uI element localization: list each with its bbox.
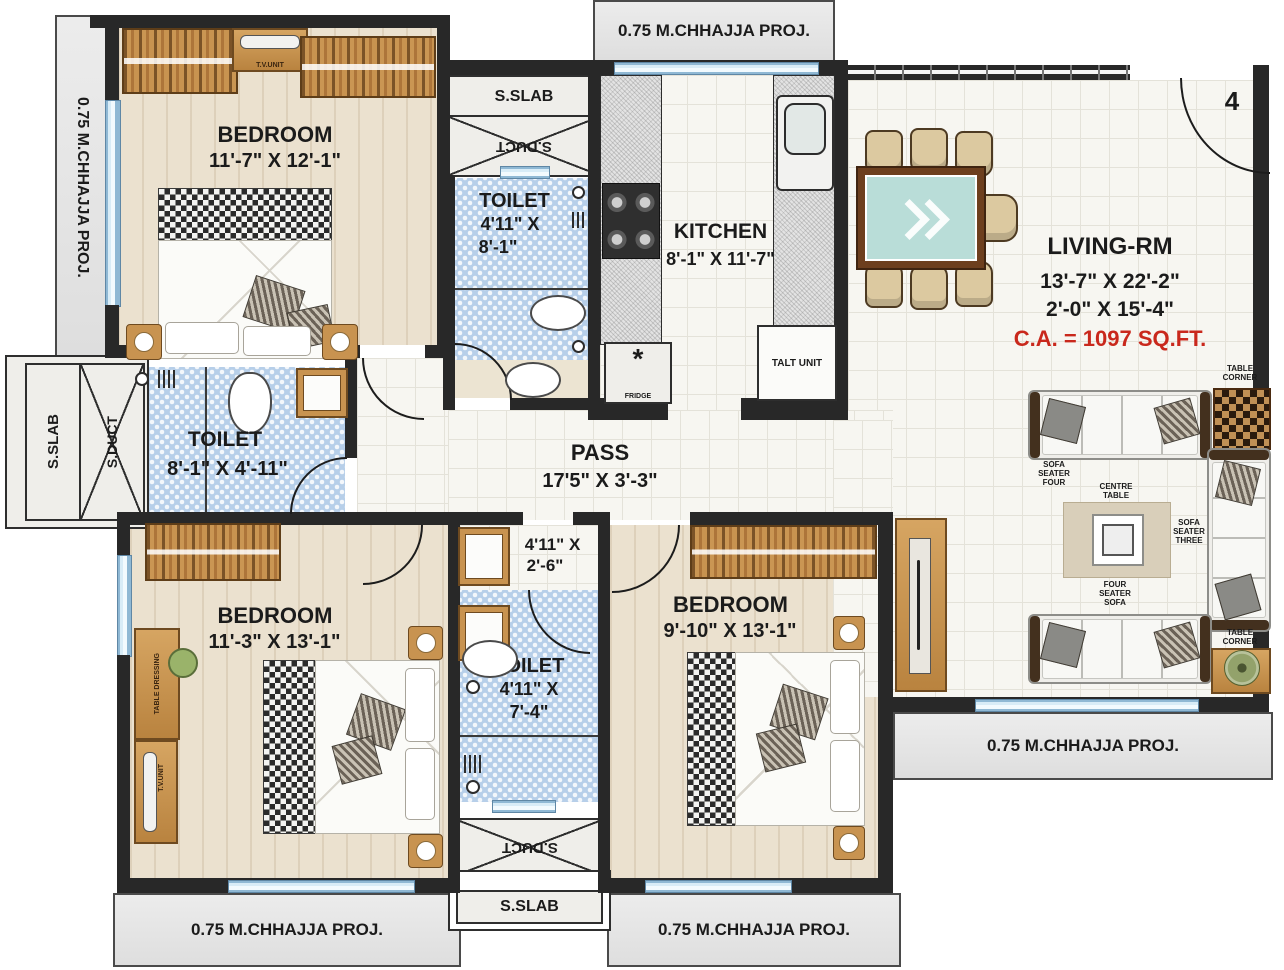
living-cabinet	[895, 518, 947, 692]
toilet-left-basin	[296, 368, 348, 418]
toilet-bottom-divider	[460, 735, 598, 737]
bedroom1-wardrobe-left	[122, 28, 238, 94]
living-dims1: 13'-7" X 22'-2"	[955, 270, 1265, 294]
wall-segment	[90, 15, 450, 28]
toilet-top-fitting	[572, 212, 586, 228]
chhajja-left: 0.75 M.CHHAJJA PROJ.	[55, 15, 109, 359]
sofa-seater-three	[1207, 448, 1271, 632]
toilet-left-wc	[228, 372, 272, 434]
toilet-top-name: TOILET	[452, 190, 577, 213]
living-area: C.A. = 1097 SQ.FT.	[955, 326, 1265, 352]
entrance-number: 4	[1212, 86, 1252, 117]
kitchen-name: KITCHEN	[648, 220, 793, 244]
corner-table-top	[1213, 388, 1271, 450]
wall-segment	[105, 15, 119, 100]
pass-name: PASS	[545, 440, 655, 466]
bedroom2-tv-label: T.V.UNIT	[158, 764, 165, 792]
lobby-basin-top	[458, 527, 510, 586]
bedroom1-wardrobe-right	[300, 36, 436, 98]
bedroom1-window	[105, 100, 121, 307]
toilet-left-name: TOILET	[135, 428, 315, 452]
sslab-bottom-label: S.SLAB	[500, 898, 559, 916]
bedroom1-name: BEDROOM	[180, 122, 370, 148]
toilet-bottom-shower	[464, 755, 484, 773]
wall-segment	[598, 512, 610, 893]
four-seater-label: FOUR SEATER SOFA	[1088, 580, 1142, 608]
bedroom1-side-table-left	[126, 324, 162, 360]
chhajja-top: 0.75 M.CHHAJJA PROJ.	[593, 0, 835, 62]
bedroom2-dims: 11'-3" X 13'-1"	[162, 631, 387, 654]
bedroom3-bed-blanket	[687, 652, 737, 826]
bedroom1-side-table-right	[322, 324, 358, 360]
kitchen-fridge-box: * FRIDGE	[604, 342, 672, 404]
kitchen-dims: 8'-1" X 11'-7"	[638, 249, 803, 270]
bedroom2-tv-unit: T.V.UNIT	[134, 740, 178, 844]
bedroom2-side-table-bottom	[408, 834, 443, 868]
bedroom3-name: BEDROOM	[638, 592, 823, 618]
sofa-three-label: SOFA SEATER THREE	[1168, 518, 1210, 546]
bedroom1-tv-unit-label: T.V.UNIT	[234, 62, 306, 69]
bedroom2-name: BEDROOM	[180, 603, 370, 629]
bedroom2-pillow	[405, 668, 435, 742]
kitchen-talt-unit: TALT UNIT	[757, 325, 837, 401]
bedroom2-wardrobe	[145, 523, 281, 581]
sduct-left-label: S.DUCT	[104, 416, 120, 468]
toilet-bottom-dim-b: 7'-4"	[465, 702, 593, 723]
chhajja-right-label: 0.75 M.CHHAJJA PROJ.	[987, 736, 1179, 756]
bedroom1-pillow	[165, 322, 239, 354]
bedroom1-tv-unit: T.V.UNIT	[232, 28, 308, 72]
centre-table	[1092, 514, 1144, 566]
toilet-top-dim-a: 4'11" X	[450, 214, 570, 235]
bedroom2-side-window	[117, 555, 132, 657]
pass-dims: 17'5" X 3'-3"	[520, 470, 680, 493]
wall-segment	[588, 60, 600, 410]
toilet-top-dim-b: 8'-1"	[443, 237, 553, 258]
lobby-dim-b: 2'-6"	[505, 556, 585, 576]
toilet-top-wc	[530, 295, 586, 331]
sslab-left-label: S.SLAB	[45, 414, 62, 469]
sduct-bottom-label: S.DUCT	[502, 839, 558, 856]
floor-plan: 0.75 M.CHHAJJA PROJ. 0.75 M.CHHAJJA PROJ…	[0, 0, 1284, 970]
bedroom2-dressing-label: TABLE DRESSING	[154, 653, 161, 714]
centre-table-label: CENTRE TABLE	[1090, 482, 1142, 500]
pass-floor-main	[448, 410, 893, 520]
living-top-wall-window	[848, 65, 1130, 80]
toilet-bottom-dim-a: 4'11" X	[465, 679, 593, 700]
bedroom2-side-table-top	[408, 626, 443, 660]
four-seater-sofa	[1028, 614, 1212, 684]
bedroom2-window	[228, 880, 415, 893]
chhajja-br-label: 0.75 M.CHHAJJA PROJ.	[658, 920, 850, 940]
bedroom1-dims: 11'-7" X 12'-1"	[170, 150, 380, 173]
corner-plant	[1224, 650, 1260, 686]
toilet-left-shower	[158, 370, 178, 388]
living-window	[975, 699, 1199, 712]
table-corner-bottom-label: TABLE CORNER	[1214, 628, 1266, 646]
bedroom1-bed-blanket	[158, 188, 332, 242]
toilet-top-divider	[455, 288, 588, 290]
toilet-bottom-tap2	[466, 780, 480, 794]
toilet-bottom-tap	[466, 680, 480, 694]
wall-segment	[878, 512, 893, 893]
kitchen-sink	[776, 95, 834, 191]
toilet-top-tap	[572, 186, 585, 199]
bedroom3-window	[645, 880, 792, 893]
toilet-bottom-wc	[462, 640, 518, 678]
sslab-top-label: S.SLAB	[495, 88, 554, 106]
chhajja-right: 0.75 M.CHHAJJA PROJ.	[893, 712, 1273, 780]
chhajja-bottom-right: 0.75 M.CHHAJJA PROJ.	[607, 893, 901, 967]
table-corner-top-label: TABLE CORNER	[1214, 364, 1266, 382]
sduct-bottom: S.DUCT	[455, 818, 604, 877]
chhajja-bl-label: 0.75 M.CHHAJJA PROJ.	[191, 920, 383, 940]
bedroom3-pillow2	[830, 740, 860, 812]
toilet-left-tap	[135, 372, 149, 386]
toilet-top-window	[500, 166, 550, 179]
wall-segment	[117, 512, 130, 555]
living-name: LIVING-RM	[955, 233, 1265, 261]
fridge-icon: *	[633, 343, 644, 374]
sslab-bottom: S.SLAB	[456, 890, 603, 924]
sslab-top: S.SLAB	[447, 75, 601, 119]
toilet-top-tap2	[572, 340, 585, 353]
wall-segment	[741, 398, 848, 420]
sofa-four-label: SOFA SEATER FOUR	[1030, 460, 1078, 488]
dining-chair	[910, 264, 948, 310]
bedroom1-pillow2	[243, 326, 311, 356]
toilet-top-basin	[505, 362, 561, 398]
chhajja-top-label: 0.75 M.CHHAJJA PROJ.	[618, 21, 810, 41]
sslab-left: S.SLAB	[25, 363, 81, 521]
bedroom3-wardrobe	[690, 525, 877, 579]
sofa-seater-four	[1028, 390, 1212, 460]
talt-unit-label: TALT UNIT	[772, 358, 822, 369]
wall-segment	[117, 655, 130, 893]
wall-segment	[437, 60, 600, 75]
bedroom2-bed-blanket	[263, 660, 317, 834]
bedroom2-pillow2	[405, 748, 435, 820]
bedroom3-pillow	[830, 660, 860, 734]
living-dims2: 2'-0" X 15'-4"	[955, 298, 1265, 322]
sduct-top-label: S.DUCT	[496, 138, 552, 155]
wall-segment	[690, 512, 890, 525]
chhajja-left-label: 0.75 M.CHHAJJA PROJ.	[73, 97, 91, 278]
bedroom3-dims: 9'-10" X 13'-1"	[620, 620, 840, 643]
toilet-bottom-window	[492, 800, 556, 813]
wall-segment	[443, 398, 455, 410]
kitchen-window	[614, 62, 819, 75]
wall-segment	[510, 398, 600, 410]
wall-segment	[448, 512, 523, 525]
kitchen-fridge-label: FRIDGE	[606, 393, 670, 400]
bedroom3-side-table-bottom	[833, 826, 865, 860]
chhajja-bottom-left: 0.75 M.CHHAJJA PROJ.	[113, 893, 461, 967]
toilet-left-dims: 8'-1" X 4'-11"	[120, 458, 335, 481]
lobby-dim-a: 4'11" X	[510, 535, 595, 555]
